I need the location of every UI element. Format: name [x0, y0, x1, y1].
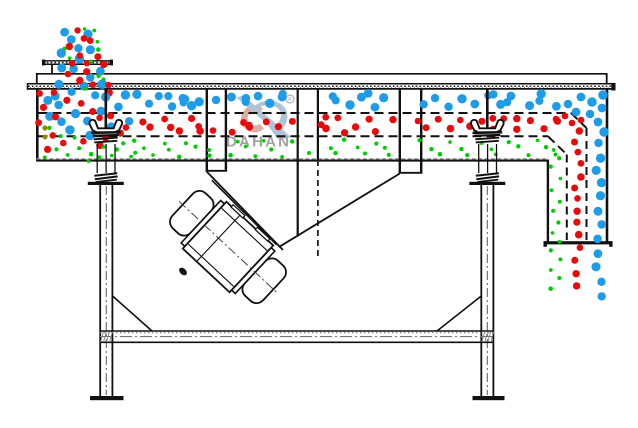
- svg-text:R: R: [288, 97, 292, 103]
